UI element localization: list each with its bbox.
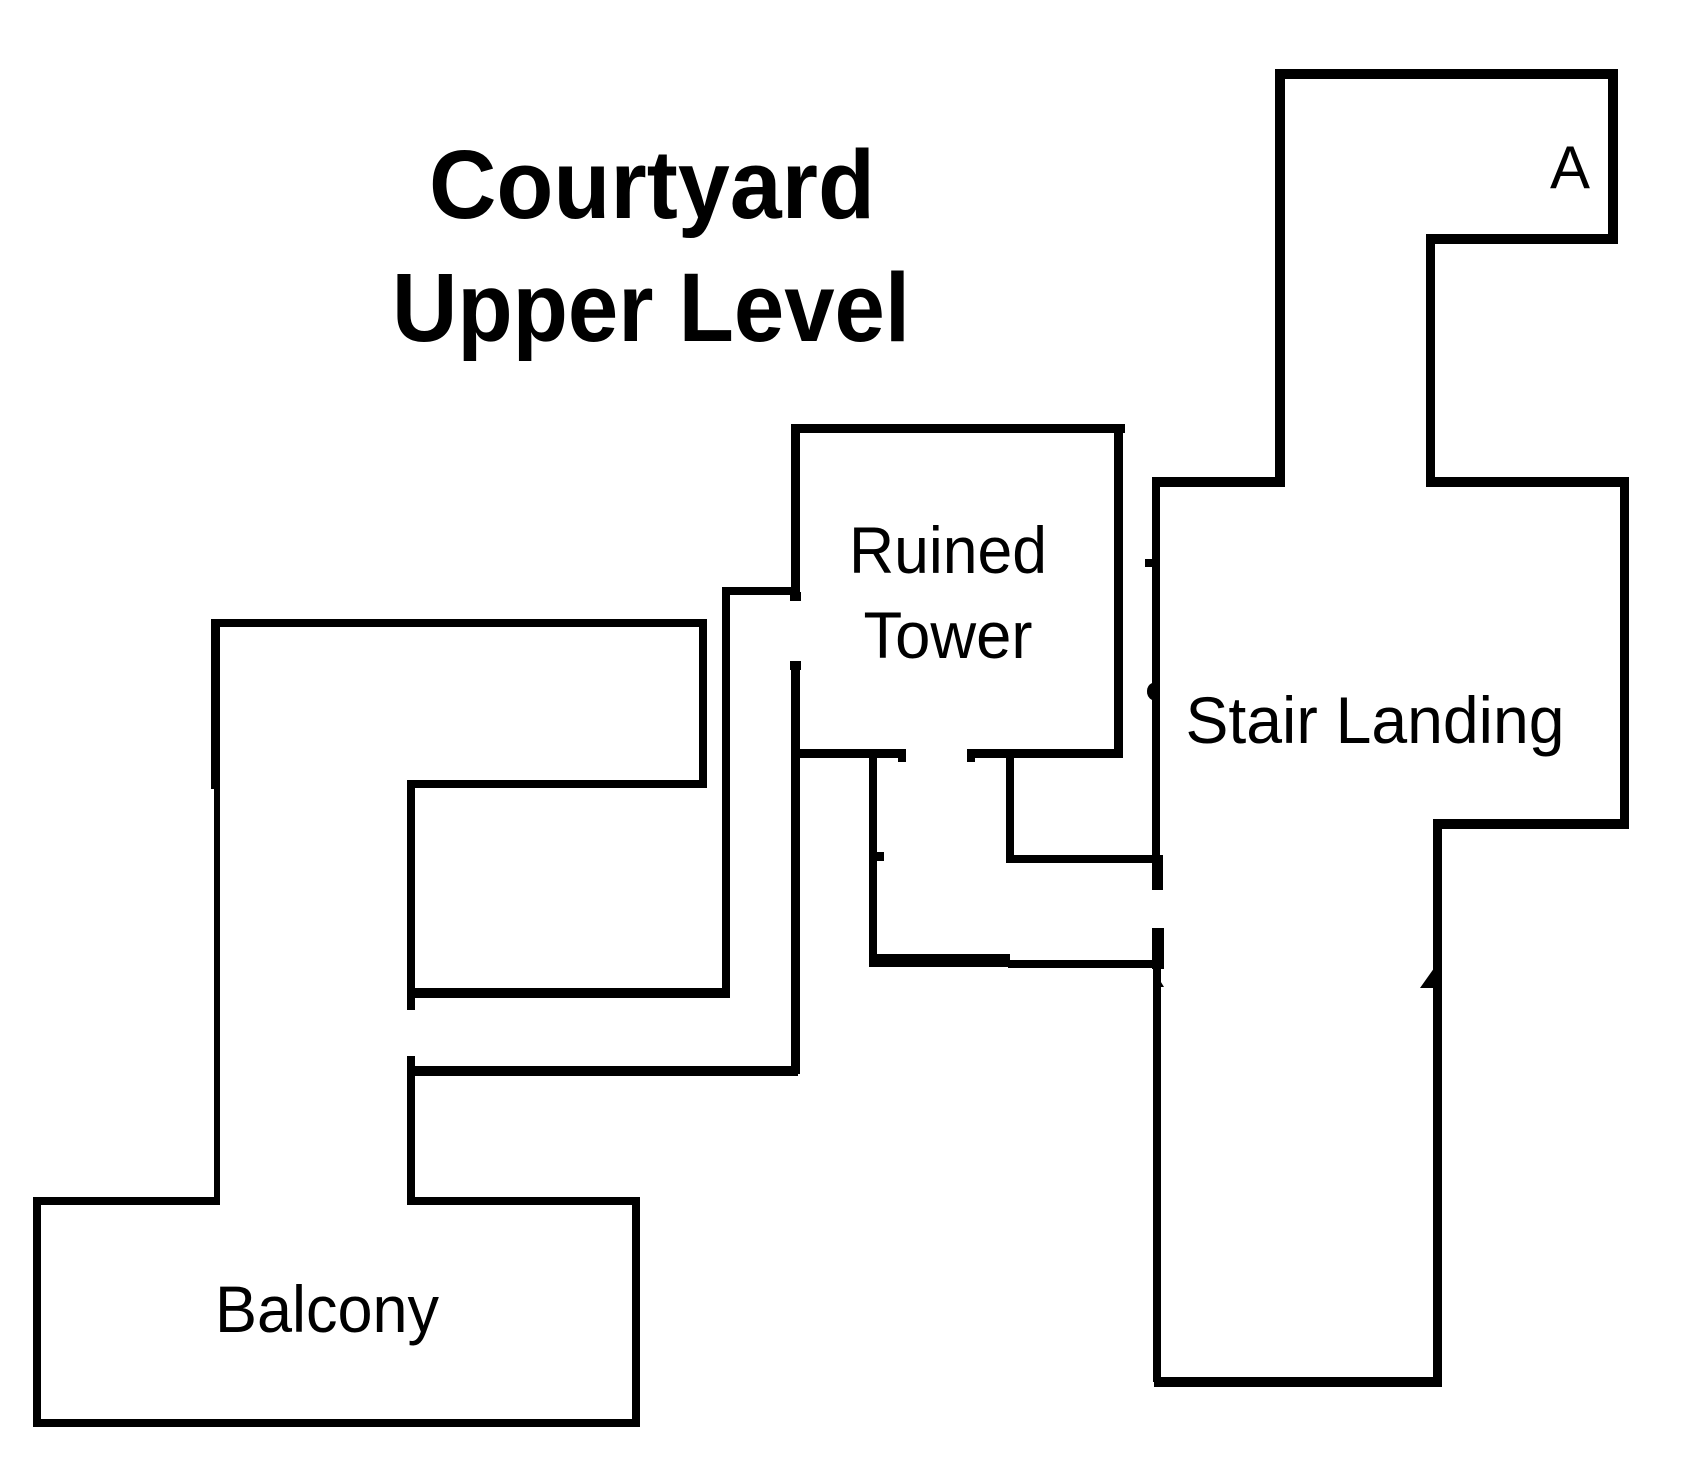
svg-text:Courtyard: Courtyard (429, 130, 875, 239)
svg-text:Upper Level: Upper Level (392, 253, 910, 362)
svg-text:Balcony: Balcony (215, 1272, 439, 1346)
svg-text:Stair Landing: Stair Landing (1186, 683, 1565, 757)
svg-text:Ruined: Ruined (849, 513, 1047, 587)
svg-text:Tower: Tower (864, 598, 1033, 672)
svg-text:A: A (1550, 134, 1590, 201)
